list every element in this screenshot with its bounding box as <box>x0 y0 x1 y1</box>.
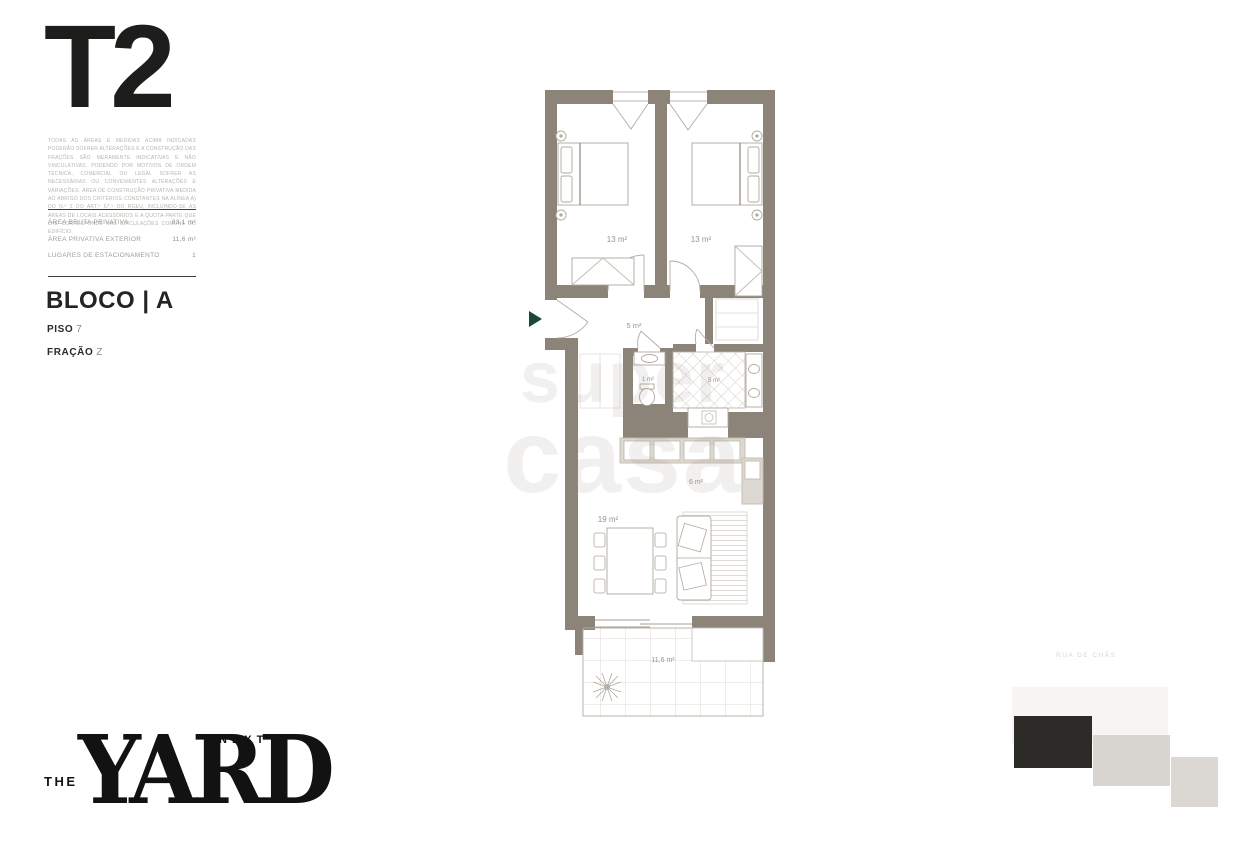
keyplan-block-gray1 <box>1093 735 1170 786</box>
room-label-bathroom: 5 m² <box>708 378 720 384</box>
table-row: ÁREA PRIVATIVA EXTERIOR 11,6 m² <box>48 236 196 243</box>
logo-the: THE <box>44 774 78 789</box>
room-label-bedroom2: 13 m² <box>691 235 712 244</box>
floor-plan: 13 m² 13 m² 5 m² 1 m² 5 m² 6 m² 19 m² 11… <box>500 80 800 730</box>
room-label-wc: 1 m² <box>642 377 654 383</box>
area-label: LUGARES DE ESTACIONAMENTO <box>48 252 160 259</box>
floor-line: PISO7 <box>47 324 82 335</box>
fraction-value: Z <box>96 347 103 358</box>
bedroom-2-furniture <box>692 131 762 296</box>
area-value: 1 <box>192 252 196 259</box>
street-label: RUA DE CHÃS <box>1056 652 1117 659</box>
keyplan-block-gray2 <box>1171 757 1218 807</box>
vanity-icon <box>746 354 762 407</box>
divider-top <box>48 209 196 210</box>
room-label-bedroom1: 13 m² <box>607 235 628 244</box>
table-row: ÁREA BRUTA PRIVATIVA 83,1 m² <box>48 219 196 226</box>
sliding-door-icon <box>595 620 692 627</box>
floor-value: 7 <box>76 324 82 335</box>
area-value: 11,6 m² <box>172 236 196 243</box>
room-label-balcony: 11,6 m² <box>651 657 675 664</box>
typology-title: T2 <box>44 8 170 126</box>
wardrobe-icon <box>572 258 634 285</box>
keyplan-block-highlighted <box>1014 716 1092 768</box>
divider-bottom <box>48 276 196 277</box>
area-value: 83,1 m² <box>172 219 196 226</box>
dining-table-icon <box>607 528 653 594</box>
room-label-living: 19 m² <box>598 515 619 524</box>
corridor-closet-icon <box>580 354 620 408</box>
floor-label: PISO <box>47 324 73 335</box>
block-title: BLOCO | A <box>46 287 174 315</box>
living-furniture <box>594 512 747 604</box>
room-label-hall: 5 m² <box>627 321 643 330</box>
table-row: LUGARES DE ESTACIONAMENTO 1 <box>48 252 196 259</box>
area-label: ÁREA BRUTA PRIVATIVA <box>48 219 129 226</box>
room-label-kitchen: 6 m² <box>689 479 704 486</box>
bedroom-1-furniture <box>556 131 634 285</box>
wardrobe-icon <box>735 246 762 296</box>
hall-closet-icon <box>716 299 758 340</box>
kitchen-counter-icon <box>620 438 763 504</box>
area-label: ÁREA PRIVATIVA EXTERIOR <box>48 236 141 243</box>
entry-arrow-icon <box>529 311 542 327</box>
fraction-label: FRAÇÃO <box>47 347 93 358</box>
logo-yard: YARD <box>78 722 329 817</box>
fraction-line: FRAÇÃOZ <box>47 347 103 358</box>
areas-table: ÁREA BRUTA PRIVATIVA 83,1 m² ÁREA PRIVAT… <box>48 219 196 269</box>
balcony <box>583 628 763 716</box>
